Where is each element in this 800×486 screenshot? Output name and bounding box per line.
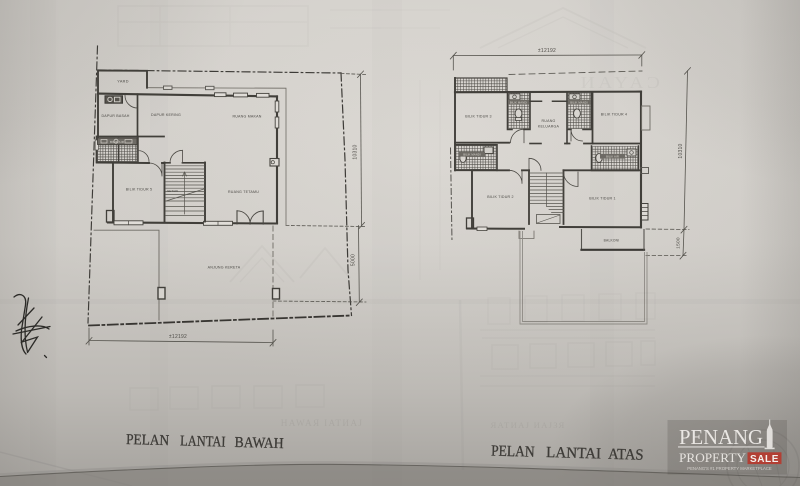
svg-text:BILIK TIDUR 3: BILIK TIDUR 3 [465, 115, 492, 119]
svg-text:SALE: SALE [750, 454, 779, 465]
svg-text:LANTAI: LANTAI [180, 433, 226, 450]
svg-text:10310: 10310 [353, 144, 359, 159]
svg-text:±12192: ±12192 [538, 48, 556, 54]
svg-text:PROPERTY: PROPERTY [679, 451, 746, 465]
svg-text:ANJUNG KERETA: ANJUNG KERETA [208, 266, 241, 270]
svg-text:PENANG'S #1 PROPERTY MARKETPLA: PENANG'S #1 PROPERTY MARKETPLACE [687, 466, 772, 471]
svg-text:YARD: YARD [117, 80, 128, 84]
svg-text:5000: 5000 [351, 254, 357, 266]
svg-text:PELAN: PELAN [126, 432, 170, 449]
svg-text:PELAN: PELAN [491, 443, 535, 461]
svg-text:ATAS: ATAS [608, 446, 644, 464]
svg-text:DAPUR BASAH: DAPUR BASAH [101, 114, 129, 118]
svg-text:HAWAЯ IATИAJ: HAWAЯ IATИAJ [281, 418, 364, 428]
svg-text:10310: 10310 [678, 143, 684, 158]
svg-text:BILIK MANDI: BILIK MANDI [463, 153, 481, 157]
svg-text:BILIK TIDUR 5: BILIK TIDUR 5 [126, 188, 153, 192]
svg-text:ЯATИAJ ИAJЗЯ: ЯATИAJ ИAJЗЯ [490, 420, 565, 430]
svg-text:RUANG: RUANG [541, 119, 555, 123]
svg-text:±12192: ±12192 [169, 334, 187, 340]
svg-text:RUANG TETAMU: RUANG TETAMU [228, 190, 259, 194]
svg-text:KELUARGA: KELUARGA [538, 125, 560, 129]
svg-text:1500: 1500 [676, 237, 682, 249]
svg-text:BILIK TIDUR 2: BILIK TIDUR 2 [487, 195, 514, 199]
svg-text:BILIK AIR: BILIK AIR [110, 140, 125, 144]
svg-text:LANTAI: LANTAI [546, 444, 601, 463]
svg-text:BAWAH: BAWAH [234, 435, 284, 452]
svg-text:SETOR: SETOR [167, 189, 179, 193]
svg-text:RUANG MAKAN: RUANG MAKAN [232, 115, 261, 119]
svg-text:PENANG: PENANG [679, 425, 763, 449]
svg-text:BILIK MANDI: BILIK MANDI [510, 101, 528, 105]
svg-text:BILIK MANDI: BILIK MANDI [570, 101, 588, 105]
